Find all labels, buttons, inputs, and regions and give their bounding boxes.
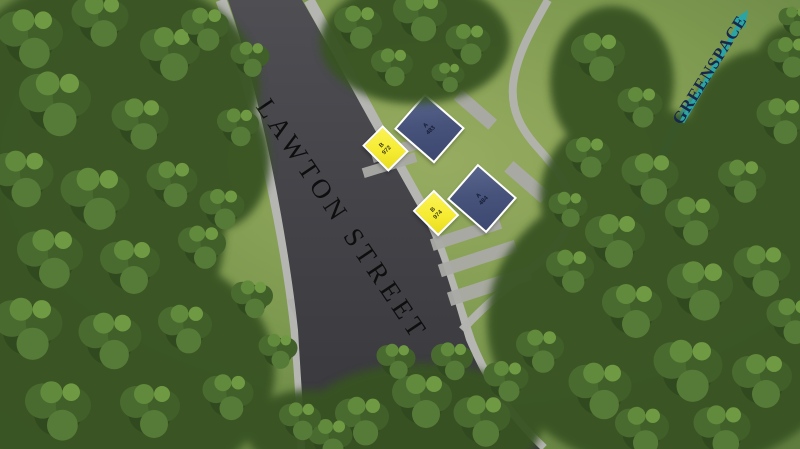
building-label: A 483: [421, 120, 438, 137]
greenspace-arrow-layer: [0, 0, 800, 449]
aerial-site-plan: LAWTON STREET A 483 B 972 A 484 B 974: [0, 0, 800, 449]
ground-layer: [0, 0, 800, 449]
tree-clumps: [0, 0, 800, 449]
curb-apron: [287, 291, 346, 351]
building-label: B 972: [377, 140, 394, 157]
forest-canopy: [0, 0, 800, 449]
grass-field: [0, 0, 800, 449]
building-label: B 974: [428, 205, 445, 222]
greenspace-label: GREENSPACE: [668, 12, 751, 129]
building-a-484: A 484: [447, 164, 517, 234]
sidewalk-left: [221, 0, 303, 449]
building-label: A 484: [474, 190, 491, 207]
forest-layer: [0, 0, 800, 449]
